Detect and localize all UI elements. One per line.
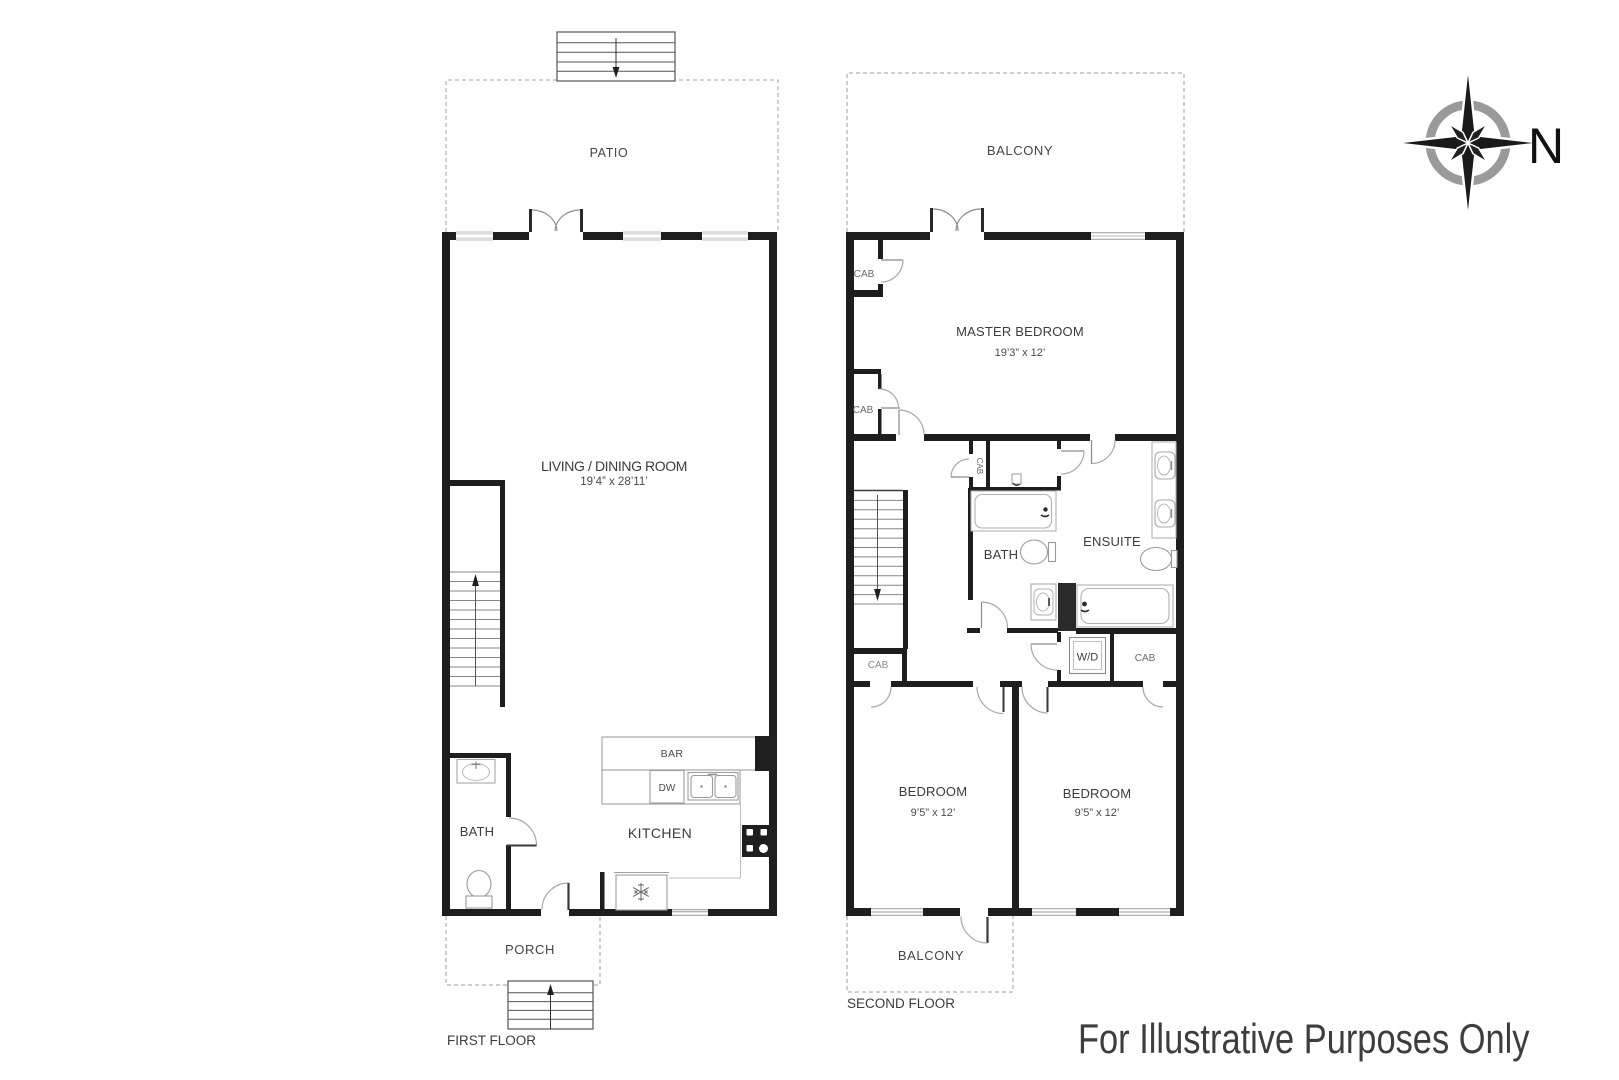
svg-text:BALCONY: BALCONY xyxy=(898,948,964,963)
svg-text:CAB: CAB xyxy=(1135,653,1156,664)
svg-text:BATH: BATH xyxy=(460,824,495,839)
svg-text:ENSUITE: ENSUITE xyxy=(1083,534,1141,549)
svg-text:SECOND FLOOR: SECOND FLOOR xyxy=(847,996,955,1011)
svg-text:BAR: BAR xyxy=(661,748,684,760)
svg-text:19’4” x 28’11’: 19’4” x 28’11’ xyxy=(580,476,648,488)
svg-text:BEDROOM: BEDROOM xyxy=(1063,786,1132,801)
svg-text:DW: DW xyxy=(659,783,676,794)
svg-text:BATH: BATH xyxy=(984,547,1019,562)
svg-text:PATIO: PATIO xyxy=(590,146,629,160)
svg-text:W/D: W/D xyxy=(1077,652,1098,664)
svg-text:FIRST FLOOR: FIRST FLOOR xyxy=(447,1033,536,1048)
svg-text:CAB: CAB xyxy=(853,405,874,416)
svg-text:PORCH: PORCH xyxy=(505,942,555,957)
svg-text:9’5” x 12’: 9’5” x 12’ xyxy=(911,807,956,819)
svg-text:BALCONY: BALCONY xyxy=(987,143,1053,158)
svg-text:9’5” x 12’: 9’5” x 12’ xyxy=(1075,807,1120,819)
svg-text:For Illustrative Purposes Only: For Illustrative Purposes Only xyxy=(1078,1016,1530,1063)
svg-text:CAB: CAB xyxy=(975,458,984,474)
svg-text:N: N xyxy=(1528,118,1564,174)
svg-text:CAB: CAB xyxy=(854,269,875,280)
svg-text:LIVING / DINING ROOM: LIVING / DINING ROOM xyxy=(541,458,687,474)
svg-text:KITCHEN: KITCHEN xyxy=(628,825,692,841)
svg-text:CAB: CAB xyxy=(868,660,889,671)
svg-text:19’3” x 12’: 19’3” x 12’ xyxy=(995,347,1046,359)
svg-text:MASTER BEDROOM: MASTER BEDROOM xyxy=(956,324,1084,339)
svg-text:BEDROOM: BEDROOM xyxy=(899,784,968,799)
